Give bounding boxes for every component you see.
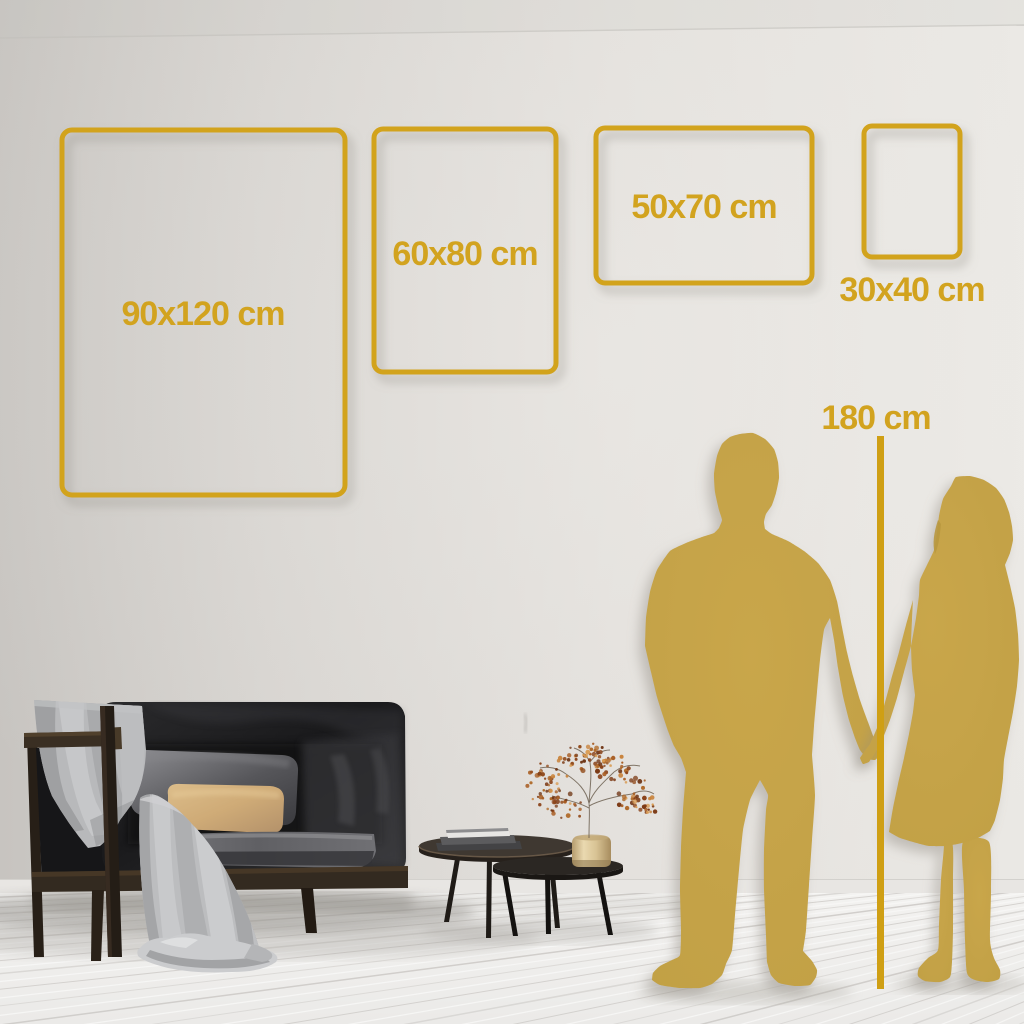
svg-text:50x70 cm: 50x70 cm	[631, 188, 776, 226]
svg-text:180 cm: 180 cm	[821, 399, 930, 437]
svg-text:90x120 cm: 90x120 cm	[121, 295, 284, 333]
svg-text:30x40 cm: 30x40 cm	[839, 271, 984, 309]
svg-text:60x80 cm: 60x80 cm	[392, 235, 537, 273]
